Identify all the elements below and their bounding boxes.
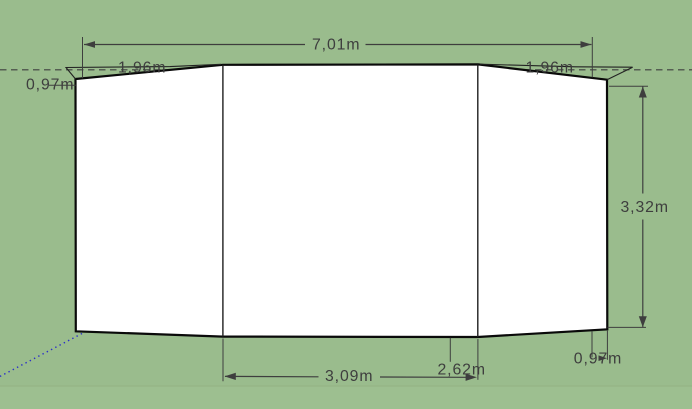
svg-text:1,96m: 1,96m [118, 60, 166, 77]
svg-text:0,97m: 0,97m [26, 76, 74, 93]
svg-text:3,09m: 3,09m [325, 368, 373, 385]
svg-text:0,97m: 0,97m [574, 351, 622, 368]
svg-text:3,32m: 3,32m [621, 199, 669, 216]
svg-text:7,01m: 7,01m [312, 37, 360, 54]
svg-text:2,62m: 2,62m [438, 362, 486, 379]
svg-text:1,96m: 1,96m [526, 60, 574, 77]
